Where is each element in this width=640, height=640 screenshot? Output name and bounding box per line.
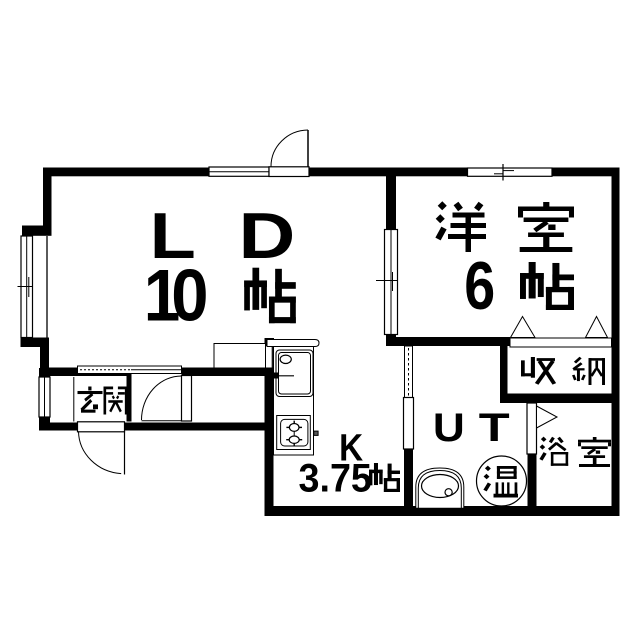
svg-text:0: 0 bbox=[171, 255, 208, 336]
svg-text:D: D bbox=[239, 200, 296, 272]
svg-text:U: U bbox=[433, 405, 465, 450]
svg-text:3.75: 3.75 bbox=[299, 457, 372, 501]
svg-text:6: 6 bbox=[464, 249, 495, 325]
svg-text:T: T bbox=[479, 405, 510, 450]
